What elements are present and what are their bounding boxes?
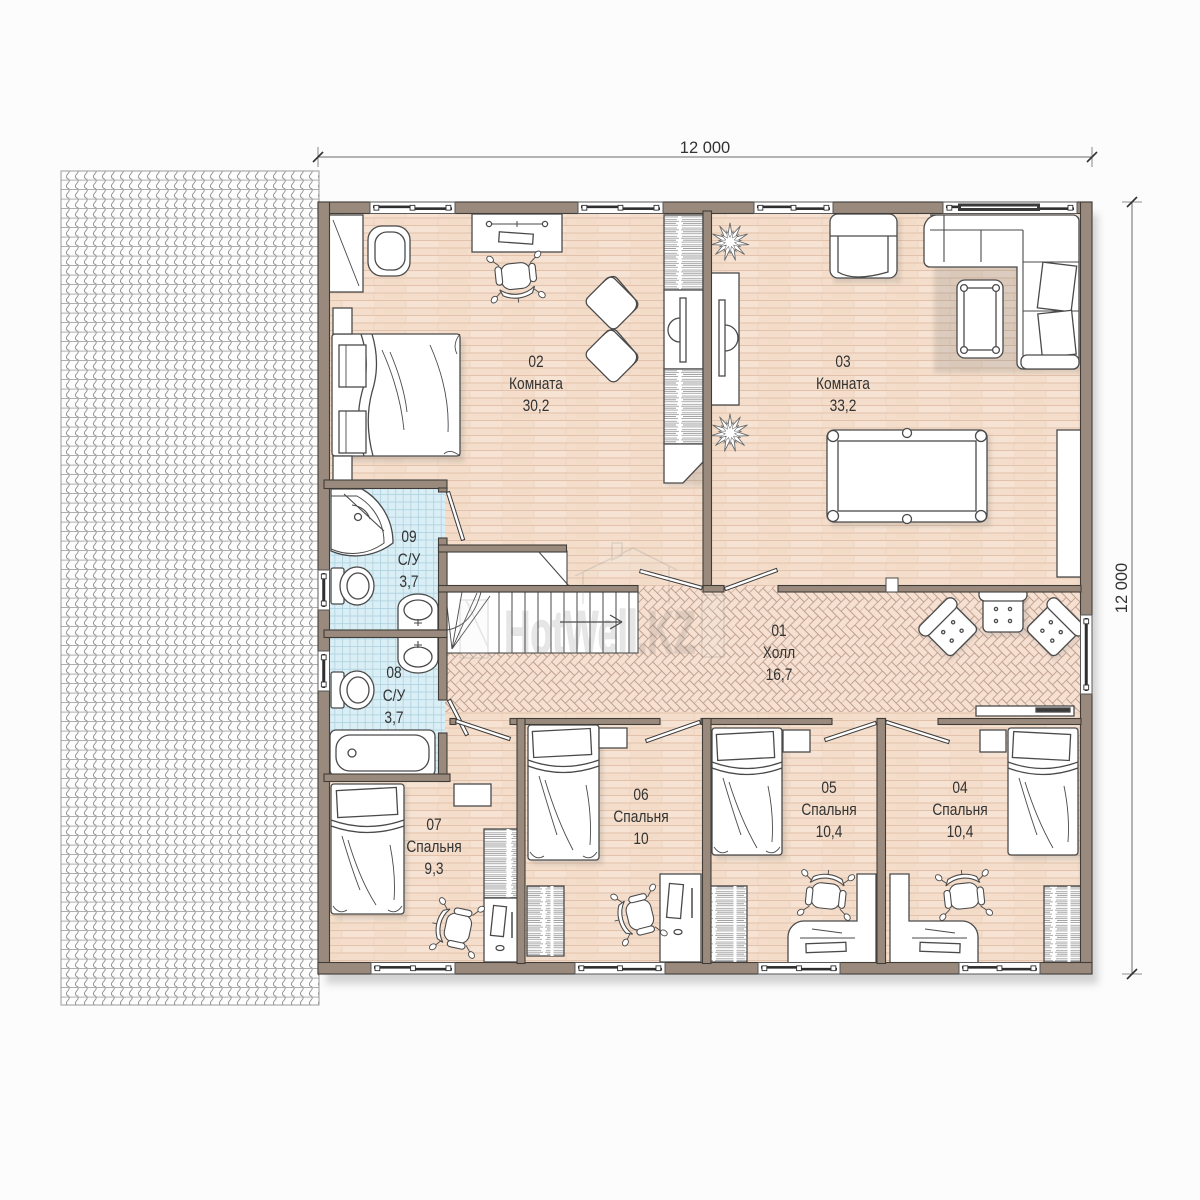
svg-text:3,7: 3,7 [399, 573, 418, 592]
svg-text:10: 10 [633, 830, 648, 849]
svg-text:07: 07 [426, 816, 441, 835]
svg-text:12 000: 12 000 [1113, 563, 1131, 613]
svg-text:09: 09 [401, 528, 416, 547]
svg-text:Спальня: Спальня [613, 808, 668, 827]
svg-text:01: 01 [771, 622, 786, 641]
svg-text:04: 04 [952, 779, 968, 798]
svg-text:Спальня: Спальня [932, 801, 987, 820]
svg-text:Спальня: Спальня [406, 838, 461, 857]
svg-text:16,7: 16,7 [766, 666, 793, 685]
svg-text:33,2: 33,2 [830, 397, 857, 416]
svg-text:HotWell.KZ: HotWell.KZ [504, 600, 695, 667]
svg-text:С/У: С/У [398, 551, 421, 570]
svg-text:05: 05 [821, 779, 836, 798]
svg-text:Спальня: Спальня [801, 801, 856, 820]
svg-text:10,4: 10,4 [816, 823, 843, 842]
svg-text:12 000: 12 000 [680, 139, 730, 157]
svg-text:С/У: С/У [383, 687, 406, 706]
svg-text:10,4: 10,4 [947, 823, 974, 842]
svg-text:Комната: Комната [509, 375, 563, 394]
svg-text:30,2: 30,2 [523, 397, 550, 416]
svg-text:06: 06 [633, 786, 648, 805]
svg-text:Холл: Холл [763, 644, 795, 663]
svg-text:Комната: Комната [816, 375, 870, 394]
svg-text:08: 08 [386, 664, 401, 683]
svg-text:02: 02 [528, 353, 543, 372]
svg-text:03: 03 [835, 353, 850, 372]
svg-text:3,7: 3,7 [384, 709, 403, 728]
svg-text:9,3: 9,3 [424, 860, 443, 879]
